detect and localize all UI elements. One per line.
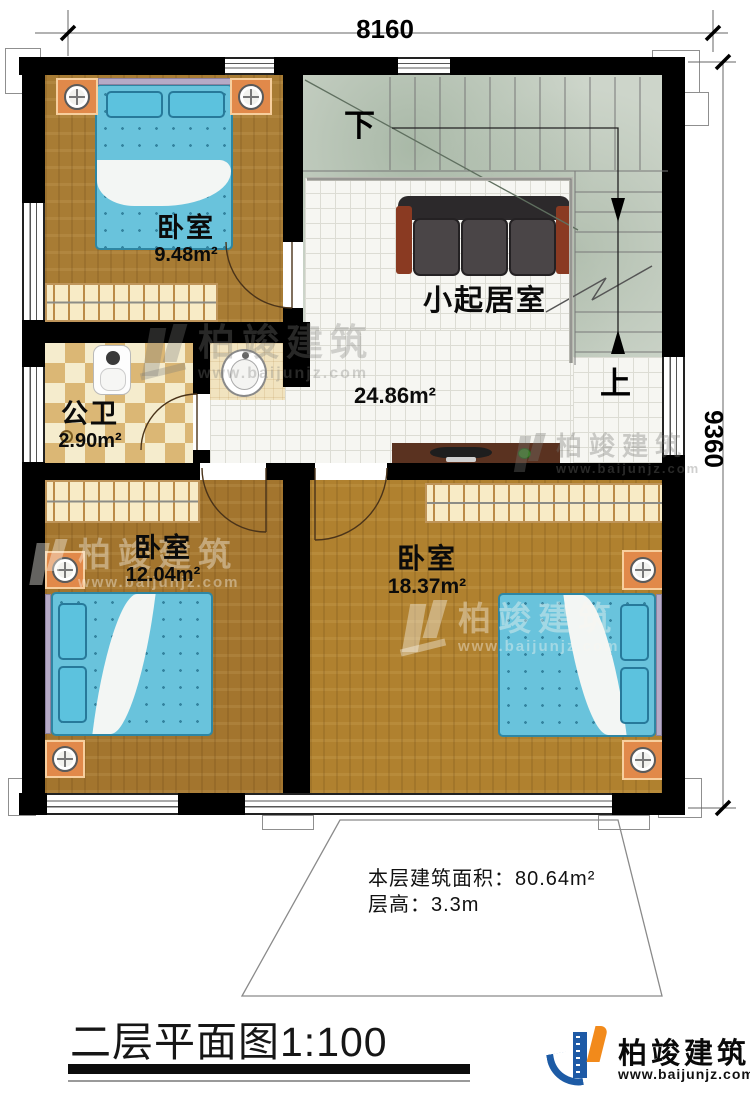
room-label-living: 小起居室	[400, 286, 570, 318]
faucet-icon	[242, 352, 249, 359]
wall-bath-right-lower	[193, 450, 210, 463]
sink	[221, 349, 267, 397]
porch-column	[598, 815, 650, 830]
lamp-icon	[630, 747, 656, 773]
room-area: 9.48m²	[154, 244, 217, 266]
toilet-basin	[100, 368, 126, 391]
room-name: 卧室	[157, 214, 215, 244]
porch-column	[262, 815, 314, 830]
dimension-top: 8160	[330, 14, 440, 45]
room-name: 卧室	[134, 534, 192, 564]
nightstand	[45, 740, 85, 778]
dimension-right: 9360	[669, 407, 750, 471]
floor-plan-canvas: 卧室 9.48m² 公卫 2.90m² 小起居室 24.86m² 卧室 12.0…	[0, 0, 750, 1104]
title-underline-thick	[68, 1064, 470, 1074]
room-label-bathroom: 公卫 2.90m²	[35, 400, 145, 452]
bed-left	[51, 592, 213, 736]
keyboard-icon	[446, 457, 476, 462]
floor-height-note: 层高：3.3m	[368, 888, 479, 917]
lamp-icon	[52, 746, 78, 772]
drawing-scale: 1:100	[280, 1019, 388, 1066]
desk	[392, 443, 560, 464]
room-area: 2.90m²	[58, 430, 121, 452]
bed-headboard	[45, 594, 51, 734]
sofa-armrest	[556, 206, 572, 274]
plant-icon	[518, 448, 531, 459]
wall-bath-top	[22, 322, 310, 343]
toilet-drain	[106, 351, 120, 365]
window-bottom-2	[245, 793, 612, 815]
sofa-seat	[509, 218, 556, 276]
room-area: 24.86m²	[354, 384, 436, 408]
corner-column	[683, 92, 709, 126]
sofa-armrest	[396, 206, 412, 274]
lamp-icon	[238, 84, 264, 110]
wall-hall-left	[22, 463, 200, 480]
pillow	[58, 666, 87, 723]
brand-url: www.baijunjz.com	[618, 1066, 750, 1082]
room-area: 18.37m²	[388, 575, 466, 598]
pillow	[58, 603, 87, 660]
nightstand	[56, 78, 98, 115]
bed-right	[498, 593, 656, 737]
wall-hall-mid	[266, 463, 315, 480]
room-area: 12.04m²	[126, 564, 201, 586]
wardrobe-bedroom-right	[425, 483, 665, 523]
nightstand	[45, 551, 85, 589]
room-name: 公卫	[61, 400, 119, 430]
lamp-icon	[630, 557, 656, 583]
room-name: 小起居室	[423, 286, 547, 318]
room-label-bedroom-top: 卧室 9.48m²	[112, 214, 260, 266]
bed-sheet-fold	[563, 595, 626, 735]
pillow	[168, 91, 225, 118]
sofa-seat	[413, 218, 460, 276]
window-left-1	[22, 203, 45, 320]
pillow	[620, 667, 649, 724]
wall-bedroom-top-right-stub	[283, 308, 303, 322]
window-top-2	[398, 57, 450, 75]
sofa-seat	[461, 218, 508, 276]
stairs-up-label: 上	[600, 358, 631, 403]
room-area-living: 24.86m²	[330, 384, 460, 408]
nightstand	[622, 740, 664, 780]
wardrobe-bedroom-left	[45, 480, 200, 523]
window-bottom-1	[47, 793, 178, 815]
wall-top	[19, 57, 685, 75]
wall-bath-right-upper	[193, 343, 210, 394]
stairs-down-label: 下	[344, 100, 375, 145]
wall-bedroom-divider	[283, 480, 310, 793]
lamp-icon	[64, 84, 90, 110]
sink-basin	[230, 359, 259, 390]
room-label-bedroom-left: 卧室 12.04m²	[103, 534, 223, 586]
title-underline-thin	[68, 1080, 470, 1082]
sofa-back	[398, 196, 570, 220]
wall-hall-right	[387, 463, 668, 480]
window-top-1	[225, 57, 274, 75]
bed-headboard	[98, 78, 232, 85]
squat-toilet	[93, 345, 131, 395]
pillow	[106, 91, 163, 118]
drawing-title-text: 二层平面图	[70, 1008, 280, 1068]
nightstand	[230, 78, 272, 115]
brand-logo-icon	[549, 1026, 611, 1090]
lamp-icon	[52, 557, 78, 583]
bed-sheet-fold	[92, 594, 155, 734]
brand-logo-tower-blue	[573, 1032, 587, 1078]
brand-logo-tower-orange	[587, 1026, 609, 1062]
room-name: 卧室	[397, 544, 457, 575]
bed-sheet-fold	[97, 160, 231, 206]
drawing-title: 二层平面图1:100	[70, 1008, 388, 1068]
pillow	[620, 604, 649, 661]
floor-area-note: 本层建筑面积：80.64m²	[368, 862, 595, 891]
room-label-bedroom-right: 卧室 18.37m²	[362, 544, 492, 598]
wall-bedroom-top-right	[283, 75, 303, 242]
nightstand	[622, 550, 664, 590]
wardrobe-bedroom-top	[45, 283, 218, 322]
